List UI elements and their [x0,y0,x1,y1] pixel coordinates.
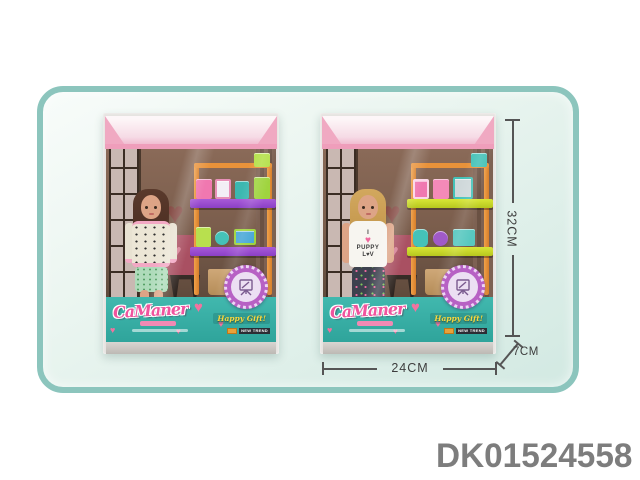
shelf-tray [407,247,493,256]
gift-badge [224,265,268,309]
toy-carrier [471,153,487,167]
heart-icon: ♥ [110,325,115,335]
age-chip [444,328,454,334]
box-bottom-edge [106,342,276,354]
doll-brunette [120,189,182,297]
doll-eye [154,206,157,209]
toy-box [234,229,256,245]
brand-panel: ♥ ♥ ♥ ♥ CaManer Happy Gift! [323,297,493,342]
toy-carrier [453,177,473,199]
toy-box [433,179,449,199]
brand-tagline-bar [349,329,405,332]
brand-logo: CaManer [330,299,405,322]
shirt-text: PUPPY [357,245,380,252]
doll-tank-top: I ♥ PUPPY L♥V [349,221,387,267]
doll-shorts [135,267,168,292]
easel-icon [231,272,261,302]
brand-tagline-bar [140,321,176,326]
panel-chips: NEW TREND [227,328,270,334]
shelf-items-row [411,225,493,247]
box-ceiling [322,116,494,146]
toy-bag [254,153,270,167]
happy-gift-label: Happy Gift! [213,313,270,324]
doll-face [358,195,378,219]
height-dimension-line [512,255,514,335]
heart-icon: ♥ [327,325,332,335]
brand-logo: CaManer [113,299,188,322]
doll-eye [371,206,374,209]
happy-gift-label: Happy Gift! [430,313,487,324]
doll-leg [140,290,149,297]
product-box-left: ♥ ♥ [103,113,279,354]
catalog-page: ♥ ♥ [0,0,640,480]
width-dimension-label: 24CM [378,361,442,375]
product-box-right: ♥ ♥ [320,113,496,354]
toy-box [215,179,231,199]
brand-tagline-bar [132,329,188,332]
shelf-tray [190,247,276,256]
product-code: DK01524558 [436,437,632,476]
width-dimension-line [443,368,495,370]
box-ceiling-panel [322,116,494,146]
shelf-items-row [194,177,276,199]
age-chip [227,328,237,334]
new-trend-chip: NEW TREND [456,328,487,334]
toy-bear [413,229,428,247]
toy-clock [433,231,448,246]
shelf-tray [407,199,493,208]
toy-box [196,179,212,199]
toy-clock [215,231,229,245]
shelf-items-row [411,177,493,199]
panel-chips: NEW TREND [444,328,487,334]
heart-icon: ♥ [411,299,420,316]
toy-bag [196,227,211,247]
doll-eye [362,206,365,209]
box-bottom-edge [323,342,493,354]
depth-dimension-label: 7CM [513,346,539,358]
doll-mouth [149,213,154,215]
height-dimension-cap-bottom [505,335,520,337]
brand-tagline-bar [357,321,393,326]
doll-leg [154,290,163,297]
height-dimension-line [512,121,514,203]
toy-box [235,181,249,199]
toy-bag [254,177,270,199]
doll-eye [145,206,148,209]
doll-blonde: I ♥ PUPPY L♥V [337,189,399,297]
shelf-items-row [194,225,276,247]
doll-sweater [132,221,170,267]
brand-panel: ♥ ♥ ♥ ♥ CaManer Happy Gift! [106,297,276,342]
heart-icon: ♥ [194,299,203,316]
shirt-text: L♥V [362,252,373,259]
gift-badge [441,265,485,309]
new-trend-chip: NEW TREND [239,328,270,334]
shelf-tray [190,199,276,208]
width-dimension-line [324,368,377,370]
box-ceiling [105,116,277,146]
heart-icon: ♥ [365,236,371,245]
height-dimension-label: 32CM [497,203,527,255]
easel-icon [448,272,478,302]
doll-capris [352,267,385,297]
toy-bag [453,229,475,246]
doll-face [141,195,161,219]
toy-box [413,179,429,199]
box-ceiling-panel [105,116,277,146]
doll-mouth [366,213,371,215]
